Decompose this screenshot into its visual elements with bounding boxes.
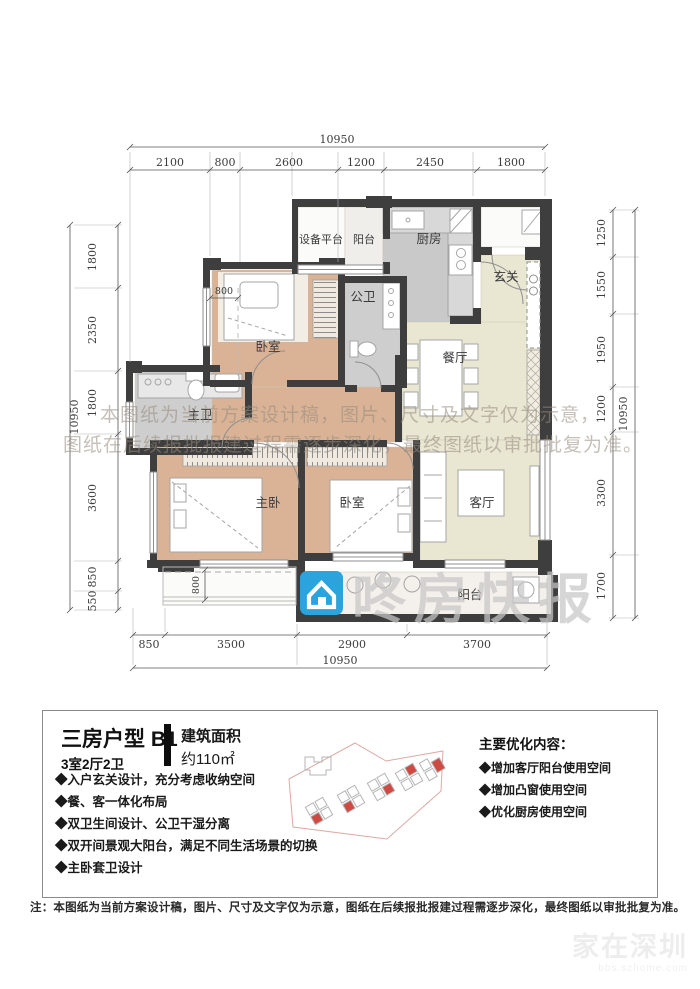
toilet-tank — [350, 341, 358, 357]
dim-left-2: 1800 — [86, 389, 99, 417]
bedroom-top-bed — [224, 274, 294, 340]
feature-item: ◆双卫生间设计、公卫干湿分离 — [55, 813, 318, 835]
label-master-bedroom: 主卧 — [255, 496, 280, 510]
optimize-title: 主要优化内容： — [479, 733, 574, 753]
dim-top-1: 800 — [215, 156, 236, 169]
site-watermark-name: 家在深圳 — [572, 933, 688, 963]
watermark-line1: 本图纸为当前方案设计稿，图片、尺寸及文字仅为示意， — [100, 404, 600, 426]
label-balcony-top: 阳台 — [353, 232, 375, 246]
floorplan-page: 10950 2100 800 2600 1200 2450 1800 850 3… — [0, 0, 700, 989]
site-plan-sketch — [283, 733, 453, 871]
optimize-item: ◆增加凸窗使用空间 — [479, 779, 611, 801]
mbath-toilet-bowl — [188, 380, 204, 400]
dim-bottom-0: 850 — [139, 638, 160, 651]
optimize-item: ◆增加客厅阳台使用空间 — [479, 757, 611, 779]
optimize-item: ◆优化厨房使用空间 — [479, 801, 611, 823]
area-value: 约110㎡ — [181, 748, 235, 769]
area-label: 建筑面积 — [181, 725, 241, 746]
dim-left-3: 3600 — [86, 484, 99, 512]
dim-bottom-total: 10950 — [323, 654, 358, 667]
dim-right-0: 1250 — [595, 219, 608, 247]
brand-logo-icon — [300, 571, 343, 615]
dim-top-2: 2600 — [275, 156, 303, 169]
dim-top-0: 2100 — [156, 156, 184, 169]
brand-watermark-text: 咚房快报 — [352, 570, 600, 630]
dim-right-2: 1950 — [595, 336, 608, 364]
dim-left-4: 850 — [86, 567, 99, 588]
label-public-bath: 公卫 — [350, 290, 375, 304]
dim-bedroom-window: 800 — [215, 286, 233, 297]
dim-left-0: 1800 — [86, 243, 99, 271]
floorplan-svg: 10950 2100 800 2600 1200 2450 1800 850 3… — [0, 0, 700, 700]
dim-top-total: 10950 — [320, 133, 355, 146]
feature-list: ◆入户玄关设计，充分考虑收纳空间 ◆餐、客一体化布局 ◆双卫生间设计、公卫干湿分… — [55, 769, 318, 879]
dim-bottom-2: 2900 — [338, 638, 366, 651]
dim-right-total: 10950 — [617, 397, 630, 432]
divider-bar — [164, 724, 171, 766]
dim-bottom-1: 3500 — [217, 638, 245, 651]
dim-bottom-3: 3700 — [463, 638, 491, 651]
sofa — [420, 452, 446, 542]
label-living: 客厅 — [469, 495, 494, 510]
bath-vanity — [383, 283, 400, 329]
label-bedroom-mid: 卧室 — [339, 495, 364, 510]
label-dining: 餐厅 — [442, 350, 467, 365]
dim-top-4: 2450 — [416, 156, 444, 169]
label-kitchen: 厨房 — [416, 231, 441, 246]
optimize-list: ◆增加客厅阳台使用空间 ◆增加凸窗使用空间 ◆优化厨房使用空间 — [479, 757, 611, 823]
dim-top-3: 1200 — [347, 156, 375, 169]
disclaimer-note: 注：本图纸为当前方案设计稿，图片、尺寸及文字仅为示意，图纸在后续报批报建过程需逐… — [30, 899, 690, 915]
label-equipment-platform: 设备平台 — [299, 232, 343, 246]
kitchen-sink — [392, 211, 424, 229]
feature-item: ◆入户玄关设计，充分考虑收纳空间 — [55, 769, 318, 791]
dim-left-total: 10950 — [68, 400, 81, 435]
feature-item: ◆主卧套卫设计 — [55, 857, 318, 879]
tv-cabinet — [530, 466, 539, 536]
label-bedroom-top: 卧室 — [255, 339, 280, 354]
stove — [449, 245, 472, 275]
unit-title: 三房户型 B1 — [61, 723, 178, 753]
feature-item: ◆双开间景观大阳台，满足不同生活场景的切换 — [55, 835, 318, 857]
watermark-line2: 图纸在后续报批报建过程需逐步深化，最终图纸以审批批复为准。 — [63, 434, 643, 456]
site-watermark-url: bbs.szhome.com — [572, 963, 688, 974]
dim-left-1: 2350 — [86, 316, 99, 344]
dim-left-5: 550 — [86, 591, 99, 612]
label-entry: 玄关 — [493, 269, 518, 284]
feature-item: ◆餐、客一体化布局 — [55, 791, 318, 813]
dim-top-5: 1800 — [497, 156, 525, 169]
dim-right-4: 3300 — [595, 479, 608, 507]
toilet-bowl — [358, 342, 376, 356]
dim-right-1: 1550 — [595, 271, 608, 299]
dim-balcony: 800 — [191, 576, 202, 594]
site-watermark: 家在深圳 bbs.szhome.com — [572, 933, 688, 974]
unit-info-panel: 三房户型 B1 3室2厅2卫 建筑面积 约110㎡ ◆入户玄关设计，充分考虑收纳… — [42, 710, 658, 898]
